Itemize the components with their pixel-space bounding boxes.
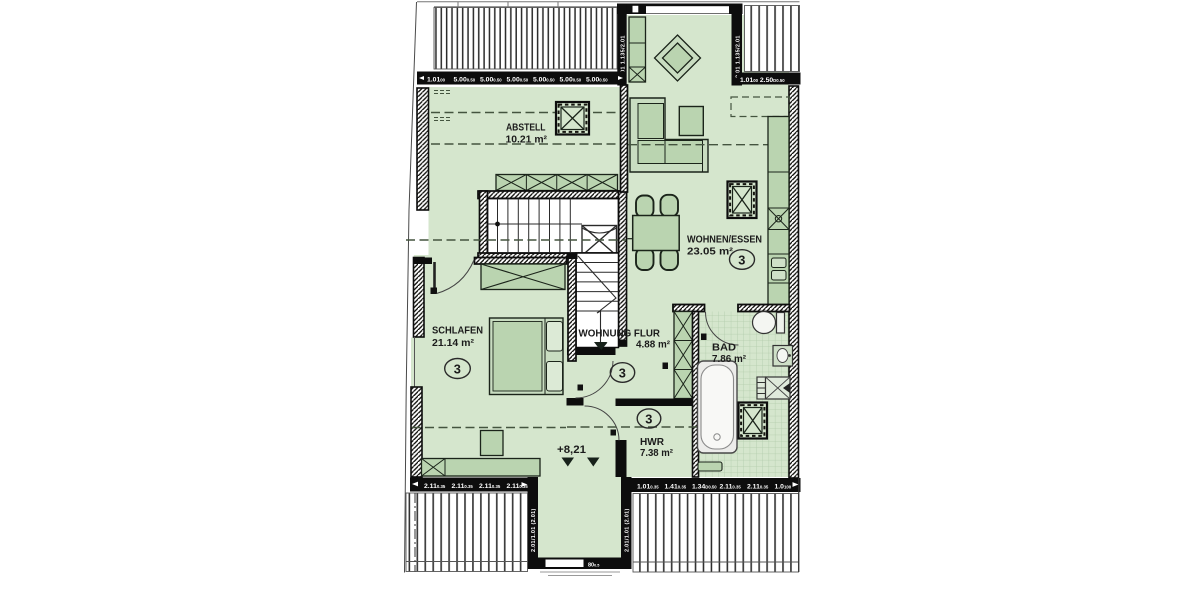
svg-text:4.88 m²: 4.88 m² — [636, 339, 670, 351]
svg-text:3: 3 — [619, 365, 626, 380]
svg-text:1.410.35: 1.410.35 — [665, 484, 687, 491]
svg-text:7.86 m²: 7.86 m² — [712, 353, 746, 365]
svg-text:1.34D0.50: 1.34D0.50 — [692, 484, 717, 491]
svg-text:1.010.35: 1.010.35 — [637, 484, 659, 491]
svg-text:ABSTELL: ABSTELL — [506, 122, 546, 134]
svg-text:1.0100 2.50D0.50: 1.0100 2.50D0.50 — [740, 77, 785, 84]
svg-text:2.110.35: 2.110.35 — [452, 483, 474, 490]
svg-text:5.000.50: 5.000.50 — [507, 77, 529, 84]
svg-text:5.000.50: 5.000.50 — [586, 77, 608, 84]
svg-text:5.000.50: 5.000.50 — [560, 77, 582, 84]
svg-text:BAD: BAD — [712, 342, 736, 354]
svg-text:1.0100: 1.0100 — [427, 77, 446, 84]
svg-text:2.110.35: 2.110.35 — [479, 483, 501, 490]
svg-text:23.05 m²: 23.05 m² — [687, 246, 734, 258]
svg-text:5.000.50: 5.000.50 — [454, 77, 476, 84]
svg-text:2.01 1.135/2.01: 2.01 1.135/2.01 — [736, 35, 742, 78]
svg-text:3: 3 — [645, 411, 652, 426]
svg-text:WOHNEN/ESSEN: WOHNEN/ESSEN — [687, 234, 762, 246]
svg-text:5.000.50: 5.000.50 — [480, 77, 502, 84]
svg-text:SCHLAFEN: SCHLAFEN — [432, 325, 483, 337]
svg-text:2.110.35: 2.110.35 — [720, 484, 742, 491]
svg-text:7.38 m²: 7.38 m² — [640, 447, 673, 459]
svg-text:3: 3 — [454, 361, 461, 376]
svg-text:5.000.50: 5.000.50 — [533, 77, 555, 84]
svg-text:3: 3 — [738, 252, 745, 267]
svg-text:1.0100: 1.0100 — [775, 484, 792, 491]
svg-text:21.14 m²: 21.14 m² — [432, 337, 474, 349]
svg-text:2.01/1.01 (2.01): 2.01/1.01 (2.01) — [625, 508, 631, 552]
svg-text:2.110.35: 2.110.35 — [747, 484, 769, 491]
svg-text:2.01/1.01 (2.01): 2.01/1.01 (2.01) — [531, 508, 537, 552]
svg-text:2.110.35: 2.110.35 — [424, 483, 446, 490]
svg-text:+8,21: +8,21 — [557, 444, 586, 456]
svg-text:10.21 m²: 10.21 m² — [506, 134, 548, 146]
